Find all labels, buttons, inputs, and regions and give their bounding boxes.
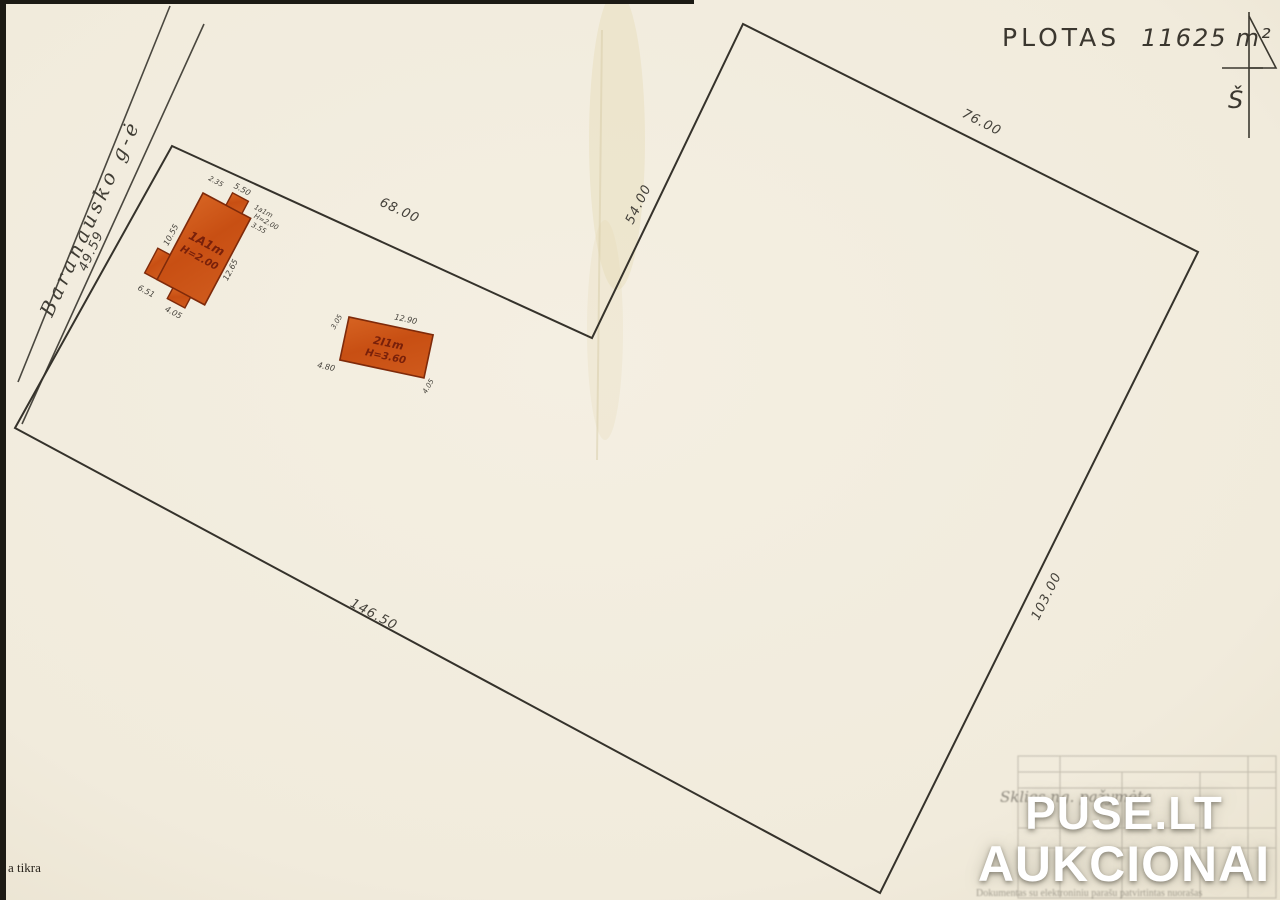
- scanned-plot-plan: Baranausko g-ė 49.59 68.00 54.00 76.00 1…: [0, 0, 1280, 900]
- plot-area-value: 11625: [1141, 24, 1227, 52]
- copy-note: a tikra: [8, 860, 41, 875]
- scan-border-top: [0, 0, 694, 4]
- watermark-line1: PUSE.LT: [974, 790, 1274, 838]
- paper-stain: [587, 220, 623, 440]
- plot-area-unit: m²: [1236, 24, 1273, 52]
- watermark: PUSE.LT AUKCIONAI: [974, 790, 1274, 890]
- north-label: Š: [1228, 84, 1243, 114]
- plan-drawing: Baranausko g-ė 49.59 68.00 54.00 76.00 1…: [0, 0, 1280, 900]
- watermark-line2: AUKCIONAI: [974, 838, 1274, 890]
- plot-area-label: PLOTAS: [1002, 23, 1120, 52]
- scan-border-left: [0, 0, 6, 900]
